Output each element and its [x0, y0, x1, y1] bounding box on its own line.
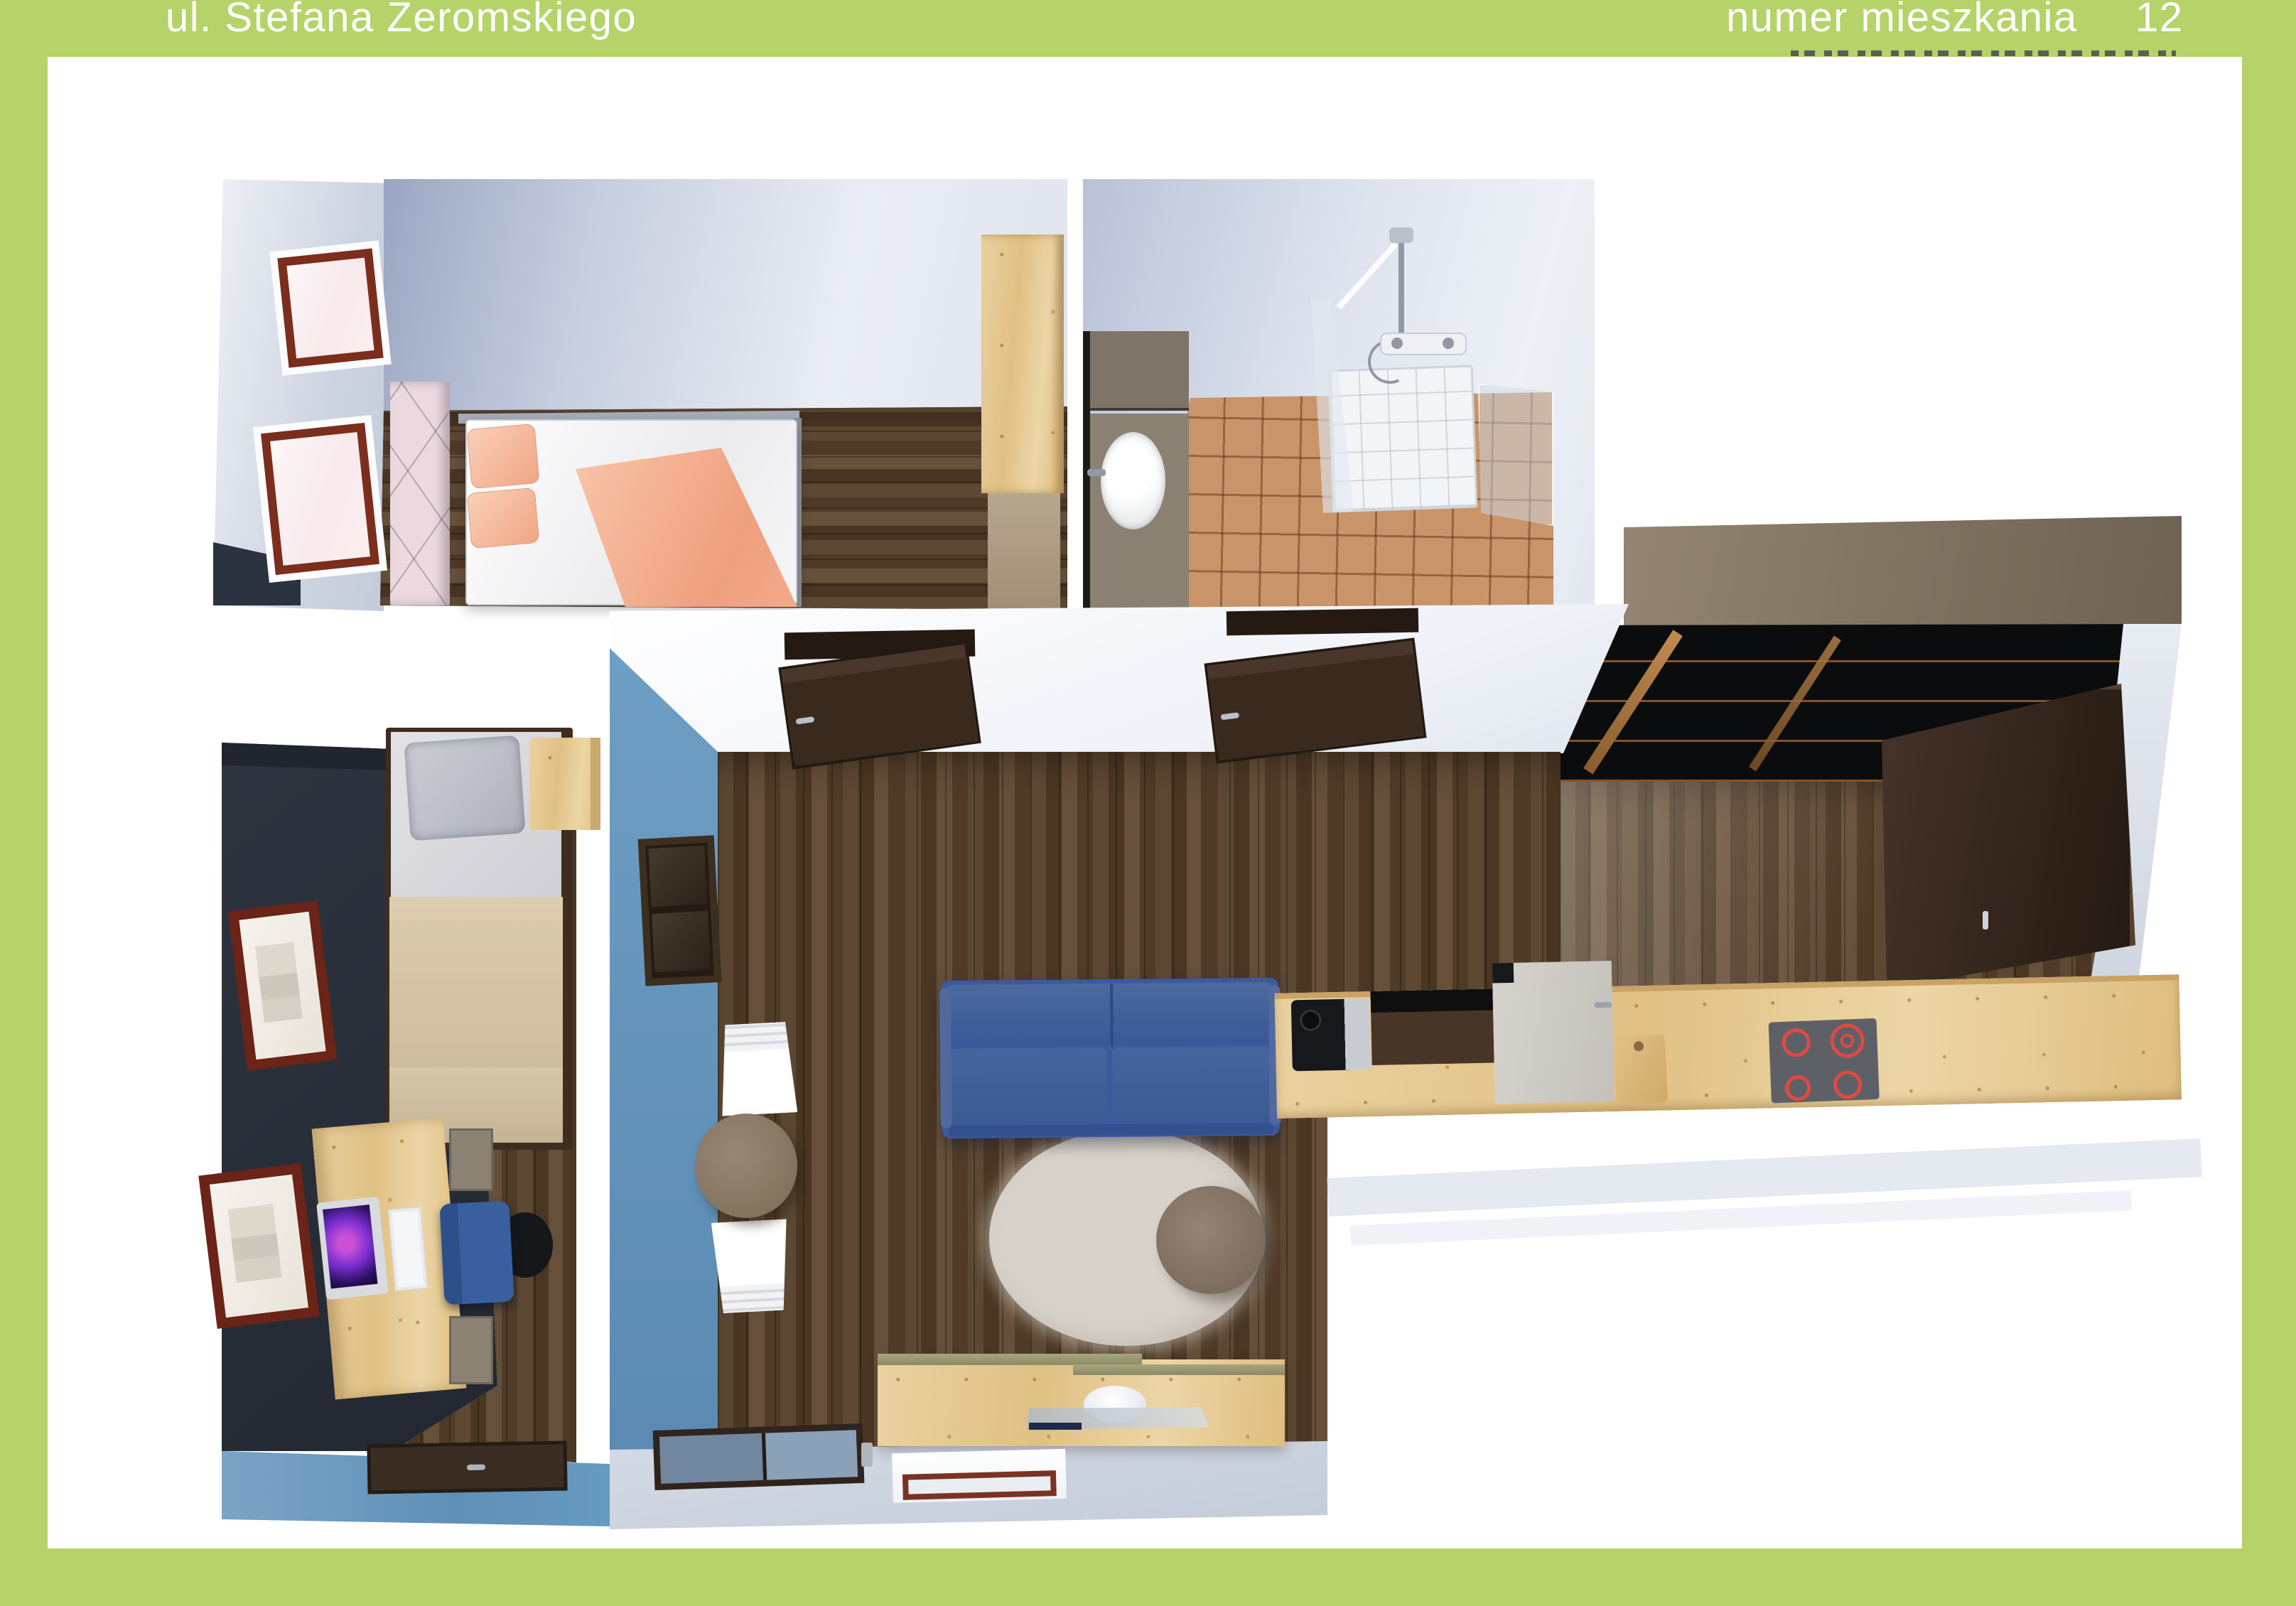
- glass-panel-mullion: [762, 1433, 767, 1480]
- coffee-table: [1156, 1186, 1266, 1294]
- door-threshold-2: [1227, 608, 1419, 636]
- cooktop-ring: [1784, 1074, 1811, 1101]
- frame-artwork: [227, 1204, 282, 1283]
- floor-plan-page: ul. Stefana Żeromskiego numer mieszkania…: [0, 0, 2296, 1606]
- dining-chair-1: [718, 1021, 798, 1116]
- street-title: ul. Stefana Żeromskiego: [166, 0, 637, 41]
- induction-cooktop: [1769, 1018, 1880, 1104]
- kitchen-faucet: [1595, 1002, 1612, 1008]
- door-handle-icon: [796, 716, 815, 725]
- entry-glass-panel: [653, 1423, 865, 1490]
- glass-panel-hinge: [861, 1443, 873, 1467]
- sideboard-top-edge-1: [878, 1354, 1142, 1365]
- blue-sofa: [941, 978, 1280, 1138]
- apartment-number-value: 12: [2135, 0, 2184, 41]
- desk-drawer-unit-2: [449, 1316, 493, 1384]
- mixer-knob-left: [1391, 338, 1403, 349]
- nightstand: [529, 738, 600, 830]
- tv-panel-edge: [1029, 1423, 1082, 1430]
- apartment-number-label: numer mieszkania: [1726, 0, 2078, 41]
- desk-drawer-unit-1: [449, 1128, 493, 1191]
- bed-pillow-2: [467, 487, 539, 549]
- cooktop-ring: [1782, 1028, 1811, 1057]
- bedroom-wall: [384, 179, 1067, 411]
- kitchen-counter-run: [1271, 949, 2183, 1119]
- single-bed-pillow: [404, 735, 525, 841]
- bedroom-headboard-wall: [390, 382, 450, 605]
- sofa-front-edge: [948, 1123, 1274, 1137]
- window-pane: [652, 911, 711, 972]
- basin-faucet: [1087, 469, 1106, 476]
- bedroom-window-2: [261, 423, 379, 575]
- window-pane: [648, 846, 707, 907]
- desk-monitor: [316, 1197, 389, 1300]
- sofa-arm-left: [939, 988, 952, 1128]
- chair-backrest: [714, 1283, 791, 1314]
- framed-unit-glass: [902, 1470, 1057, 1500]
- living-top-wall: [610, 604, 1629, 755]
- clipped-text-strip: [1791, 50, 2176, 56]
- bedroom-window-1: [277, 248, 383, 367]
- cutting-board: [1613, 1034, 1668, 1105]
- machine-knob: [1300, 1010, 1322, 1032]
- bedroom-wardrobe-base: [988, 493, 1060, 610]
- monitor-screen: [323, 1204, 377, 1288]
- dining-chair-2: [711, 1219, 792, 1313]
- single-bed-blanket: [389, 897, 563, 1067]
- door-handle-icon: [1220, 712, 1239, 720]
- bathroom-cabinet-top: [1090, 331, 1189, 411]
- office-doormat: [367, 1441, 567, 1494]
- sofa-seat-left: [949, 1047, 1107, 1124]
- desk-keyboard: [388, 1207, 428, 1291]
- doormat-handle: [467, 1465, 485, 1470]
- tall-appliance-unit: [1492, 961, 1615, 1104]
- sideboard-top-edge-2: [1073, 1364, 1285, 1375]
- mixer-knob-right: [1443, 338, 1454, 349]
- appliance-corner: [1492, 963, 1514, 983]
- living-accent-wall: [610, 648, 718, 1522]
- dark-base-cabinet: [1371, 988, 1494, 1065]
- board-hole: [1634, 1041, 1644, 1052]
- frame-artwork: [255, 942, 303, 1023]
- front-wall-framed-unit: [892, 1449, 1067, 1503]
- washbasin: [1101, 432, 1165, 529]
- sofa-seat-right: [1112, 1046, 1271, 1123]
- kitchen-top-wall-band: [1624, 516, 2182, 627]
- cooktop-ring: [1833, 1070, 1863, 1100]
- office-chair: [439, 1201, 514, 1305]
- shower-head: [1389, 227, 1413, 243]
- coffee-machine: [1291, 998, 1371, 1071]
- cabinet-handle: [1983, 911, 1988, 929]
- wall-frame-1: [228, 900, 338, 1071]
- chair-backrest: [718, 1021, 794, 1052]
- bedroom-wardrobe: [981, 235, 1064, 493]
- shower-glass-panel: [1478, 384, 1553, 526]
- wall-frame-2: [198, 1163, 319, 1329]
- dining-table: [695, 1114, 797, 1218]
- living-wall-window: [638, 835, 722, 986]
- bed-pillow-1: [467, 424, 540, 489]
- sofa-back-gap: [1110, 983, 1114, 1046]
